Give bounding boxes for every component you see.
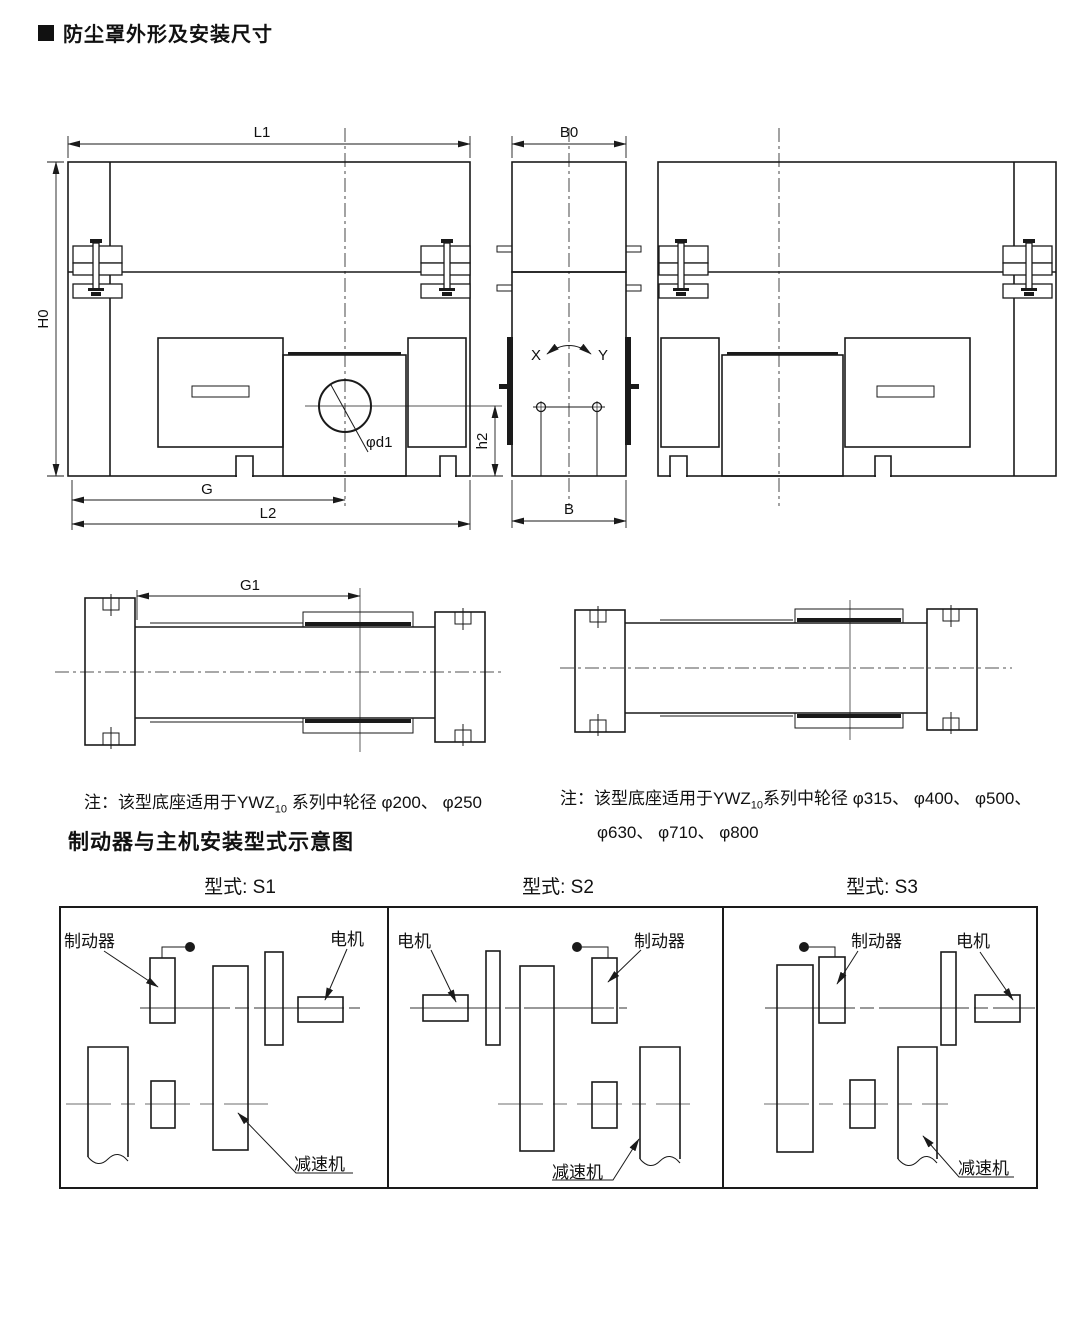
dim-H0: H0: [35, 162, 64, 476]
brake-label: 制动器: [634, 932, 685, 951]
dim-label-G: G: [201, 481, 213, 498]
panel-s3: 制动器 电机 减速机: [764, 932, 1035, 1178]
bolt-assembly: [659, 239, 708, 298]
bolt-assembly: [1003, 239, 1052, 298]
front-view: L1 H0 G L2 h2 φd1: [35, 124, 503, 530]
base-side-view-large: [560, 600, 1012, 740]
rear-view: [658, 128, 1056, 506]
dim-h2: h2: [472, 406, 503, 476]
bolt-assembly: [73, 239, 122, 298]
note-left: 注：该型底座适用于YWZ10 系列中轮径 φ200、 φ250: [84, 789, 482, 823]
note-left-text: 注：该型底座适用于YWZ: [84, 793, 275, 812]
type-header-s3: 型式: S3: [846, 872, 918, 899]
brake-label: 制动器: [851, 932, 902, 951]
bolt-assembly: [421, 239, 470, 298]
motor-label: 电机: [397, 932, 431, 951]
note-left-subscript: 10: [275, 803, 287, 815]
panel-s2: 电机 制动器 减速机: [397, 932, 690, 1182]
motor-label: 电机: [330, 930, 364, 949]
dim-label-B: B: [564, 501, 574, 518]
type-header-s1: 型式: S1: [204, 872, 276, 899]
note-right-line1: 注：该型底座适用于YWZ10系列中轮径 φ315、 φ400、 φ500、: [560, 785, 1031, 819]
dim-label-d1: φd1: [366, 434, 392, 451]
base-side-view-small: G1: [55, 577, 505, 752]
page: 防尘罩外形及安装尺寸: [0, 0, 1091, 1335]
brake-label: 制动器: [64, 932, 115, 951]
reducer-label: 减速机: [294, 1155, 345, 1174]
installation-panels: 制动器 电机 减速机 电机: [60, 907, 1037, 1188]
note-left-text2: 系列中轮径 φ200、 φ250: [287, 793, 482, 812]
dim-label-B0: B0: [560, 124, 578, 141]
release-knob: [572, 942, 582, 952]
dim-G-L2: G L2: [72, 480, 470, 530]
panel-s1: 制动器 电机 减速机: [64, 930, 364, 1174]
dim-label-Y: Y: [598, 347, 608, 364]
dim-label-h2: h2: [474, 433, 491, 450]
note-right: 注：该型底座适用于YWZ10系列中轮径 φ315、 φ400、 φ500、 φ6…: [560, 785, 1031, 846]
dim-label-L2: L2: [260, 505, 277, 522]
release-knob: [799, 942, 809, 952]
reducer-label: 减速机: [958, 1159, 1009, 1178]
reducer-label: 减速机: [552, 1163, 603, 1182]
section-title: 制动器与主机安装型式示意图: [68, 826, 354, 856]
type-header-s2: 型式: S2: [522, 872, 594, 899]
motor-label: 电机: [956, 932, 990, 951]
side-view: X Y B0 B: [497, 124, 641, 528]
dim-label-L1: L1: [254, 124, 271, 141]
dim-G1: G1: [137, 577, 360, 620]
release-knob: [185, 942, 195, 952]
dim-label-G1: G1: [240, 577, 260, 594]
dim-label-X: X: [531, 347, 541, 364]
technical-drawing: L1 H0 G L2 h2 φd1: [0, 0, 1091, 1335]
note-right-line2: φ630、 φ710、 φ800: [560, 819, 1031, 846]
dim-label-H0: H0: [35, 309, 52, 328]
dim-L1: L1: [68, 124, 470, 158]
